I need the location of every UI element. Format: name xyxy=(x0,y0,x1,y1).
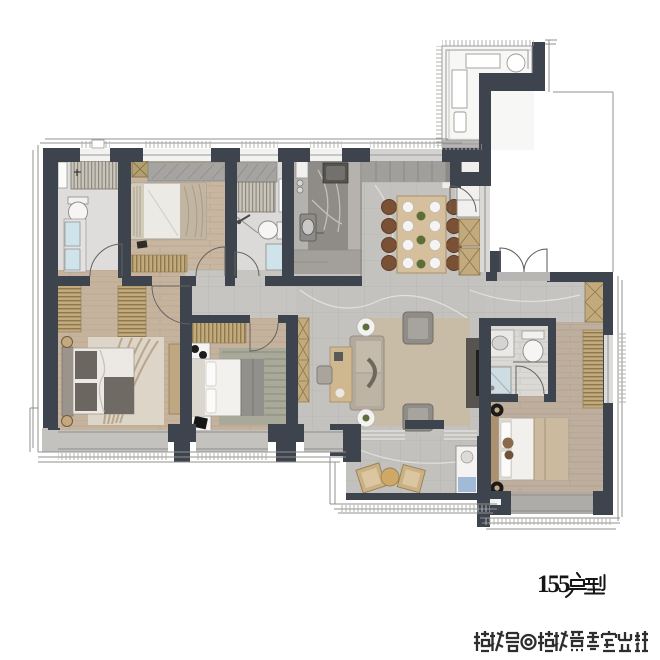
svg-text:155: 155 xyxy=(537,571,570,598)
